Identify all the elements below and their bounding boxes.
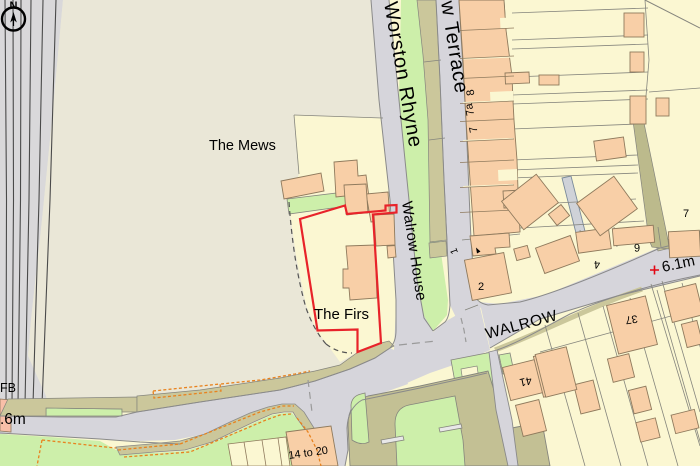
svg-text:41: 41 — [518, 374, 532, 388]
svg-text:6: 6 — [634, 241, 641, 253]
svg-text:7: 7 — [683, 208, 689, 220]
svg-text:4: 4 — [594, 258, 601, 270]
svg-text:37: 37 — [625, 312, 639, 326]
svg-text:The Mews: The Mews — [209, 138, 276, 154]
svg-text:The Firs: The Firs — [314, 306, 369, 323]
svg-text:FB: FB — [0, 381, 16, 395]
svg-text:.6m: .6m — [0, 411, 26, 428]
svg-text:2: 2 — [478, 281, 484, 293]
svg-text:N: N — [10, 0, 18, 12]
